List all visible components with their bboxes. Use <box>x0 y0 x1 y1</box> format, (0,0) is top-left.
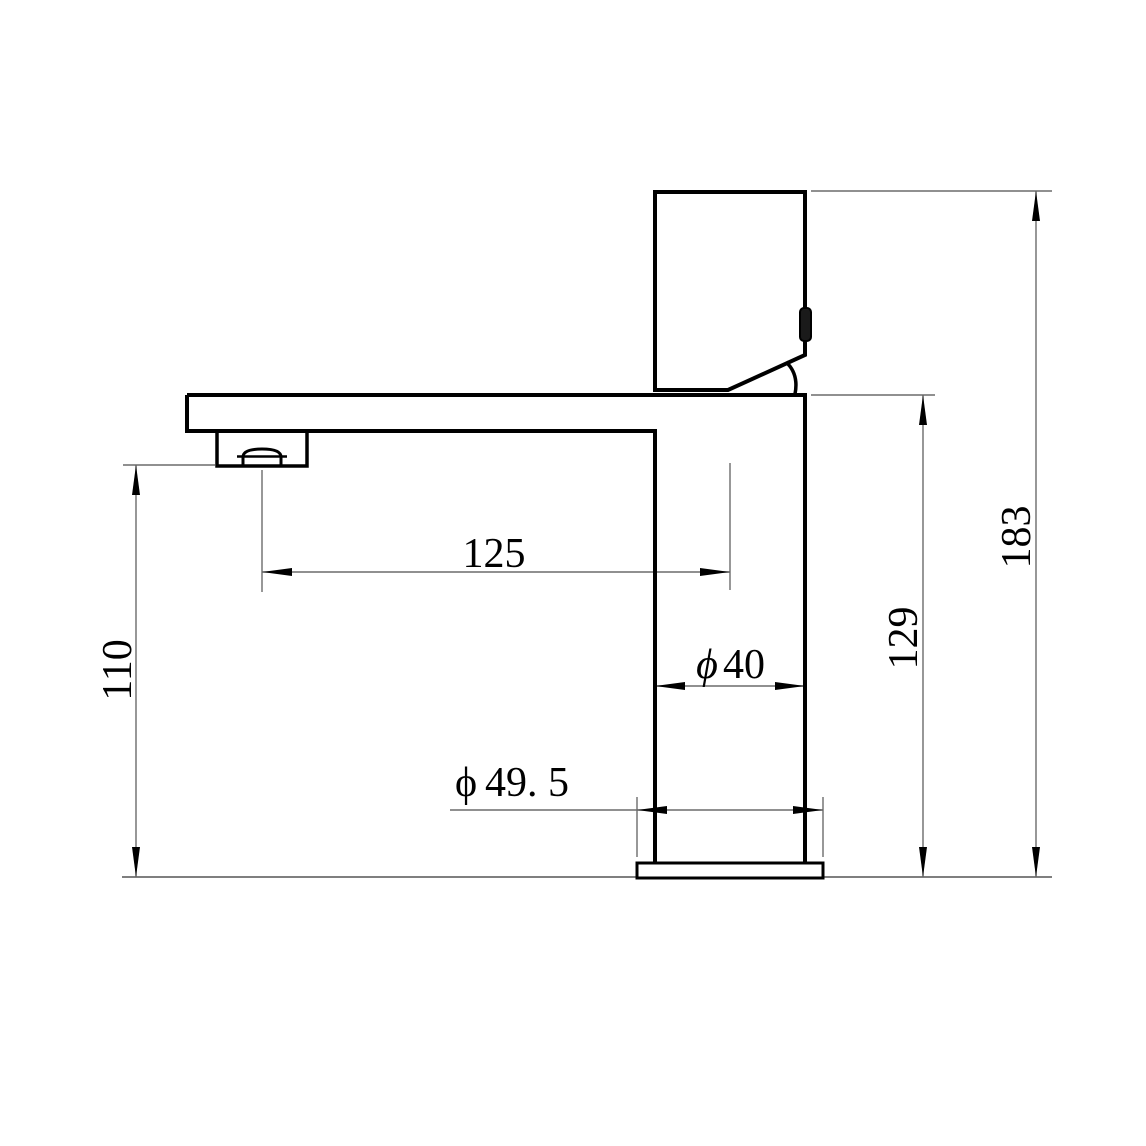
drawing-canvas: 125 110 129 183 ϕ 40 ϕ 49. 5 <box>0 0 1146 1146</box>
handle-outline <box>655 192 805 390</box>
arrow-110-down <box>132 847 140 877</box>
dimension-arrowheads <box>132 191 1040 877</box>
arrow-129-down <box>919 847 927 877</box>
dim-label-125: 125 <box>463 531 526 577</box>
dim-label-phi495-value: 49. 5 <box>485 760 569 806</box>
dimension-lines <box>122 191 1052 877</box>
base-plate <box>637 863 823 878</box>
dimension-labels: 125 110 129 183 ϕ 40 ϕ 49. 5 <box>95 506 1040 807</box>
arrow-125-right <box>700 568 730 576</box>
handle-set-screw <box>800 308 811 341</box>
arrow-phi40-right <box>775 682 805 690</box>
arrow-125-left <box>262 568 292 576</box>
dim-label-phi495-symbol: ϕ <box>455 760 477 806</box>
dim-label-phi40-value: 40 <box>723 642 765 688</box>
arrow-129-up <box>919 395 927 425</box>
arrow-183-down <box>1032 847 1040 877</box>
arrow-183-up <box>1032 191 1040 221</box>
handle-joint-arc <box>786 362 796 394</box>
arrow-phi495-left <box>637 806 667 814</box>
arrow-phi495-right <box>793 806 823 814</box>
arrow-110-up <box>132 465 140 495</box>
dim-label-129: 129 <box>881 607 927 670</box>
arrow-phi40-left <box>655 682 685 690</box>
dim-label-110: 110 <box>95 639 141 700</box>
dim-label-phi40-symbol: ϕ <box>696 642 718 688</box>
dim-label-183: 183 <box>994 506 1040 569</box>
